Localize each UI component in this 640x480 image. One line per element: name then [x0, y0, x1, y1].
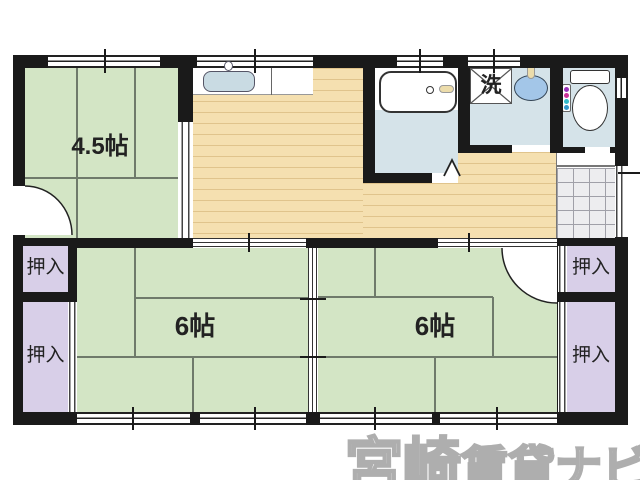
- closet-label: 押入: [567, 346, 615, 367]
- wall-segment: [615, 55, 628, 78]
- kitchen-sink: [203, 71, 255, 92]
- window: [200, 412, 306, 425]
- wall-segment: [363, 173, 432, 183]
- fusuma-tick: [300, 356, 326, 358]
- tatami-line: [318, 356, 557, 358]
- floor-plan: 4.5帖 6帖 6帖 洗 押入 押入 押入 押入 宮崎賃貸ナビ: [0, 0, 640, 480]
- wall-segment: [520, 55, 628, 68]
- closet-label: 押入: [23, 258, 68, 279]
- wall-segment: [563, 147, 585, 153]
- toilet-tank: [570, 70, 610, 84]
- hallway-floor: [363, 183, 557, 238]
- wall-segment: [313, 55, 397, 68]
- wall-segment: [363, 55, 375, 183]
- fusuma-tick: [300, 298, 326, 300]
- watermark-bold: 宮崎: [345, 433, 461, 480]
- tatami-line: [318, 296, 493, 298]
- hallway-floor-upper: [458, 152, 557, 183]
- washer-space-label: 洗: [470, 74, 512, 97]
- closet-label: 押入: [23, 346, 68, 367]
- genkan-left-edge: [556, 153, 557, 238]
- tatami-line: [192, 357, 194, 412]
- wall-segment: [550, 55, 563, 153]
- wall-segment: [615, 98, 628, 166]
- fusuma-partition: [308, 248, 318, 412]
- window-tick: [493, 49, 495, 73]
- window-tick: [254, 49, 256, 73]
- door-tick: [468, 233, 470, 252]
- door-tick: [618, 172, 640, 174]
- closet-sliding-door: [558, 302, 567, 412]
- control-dot: [564, 99, 569, 104]
- closet-sliding-door: [68, 302, 77, 412]
- control-dot: [564, 105, 569, 110]
- window-tick: [419, 49, 421, 73]
- watermark: 宮崎賃貸ナビ: [345, 418, 640, 480]
- wall-segment: [306, 412, 320, 425]
- wall-segment: [178, 55, 193, 122]
- tatami-line: [134, 68, 136, 178]
- genkan-tiles: [557, 168, 615, 238]
- wall-segment: [610, 147, 615, 153]
- faucet-icon: [224, 61, 233, 71]
- window: [615, 78, 628, 98]
- tatami-line: [434, 357, 436, 412]
- wall-segment: [458, 145, 512, 153]
- closet-label: 押入: [567, 258, 615, 279]
- room-6-right-label: 6帖: [385, 312, 485, 341]
- control-dot: [564, 93, 569, 98]
- counter-divider: [271, 68, 272, 95]
- window-tick: [104, 49, 106, 73]
- watermark-light: 賃貸ナビ: [461, 442, 640, 480]
- entrance-door: [615, 166, 628, 237]
- tatami-line: [135, 297, 308, 299]
- window-tick: [132, 407, 134, 430]
- genkan-step-edge: [557, 165, 615, 167]
- wall-segment: [13, 55, 25, 186]
- bathroom-wet-floor: [375, 110, 458, 173]
- tatami-line: [25, 177, 178, 179]
- room-6-left-label: 6帖: [145, 312, 245, 341]
- closet-sliding-door: [558, 246, 567, 292]
- sliding-door: [438, 238, 557, 248]
- wall-segment: [77, 238, 193, 248]
- tatami-line: [492, 297, 494, 357]
- wall-segment: [306, 238, 438, 248]
- room-4-5-label: 4.5帖: [45, 134, 155, 160]
- tub-handle-icon: [439, 85, 454, 93]
- toilet-bowl: [572, 85, 608, 131]
- window-tick: [254, 407, 256, 430]
- sliding-door: [178, 122, 193, 238]
- wall-segment: [458, 55, 470, 152]
- tub-drain-icon: [426, 86, 434, 94]
- control-dot: [564, 87, 569, 92]
- tatami-line: [134, 248, 136, 357]
- door-tick: [248, 233, 250, 252]
- wall-segment: [190, 412, 200, 425]
- tatami-line: [374, 248, 376, 297]
